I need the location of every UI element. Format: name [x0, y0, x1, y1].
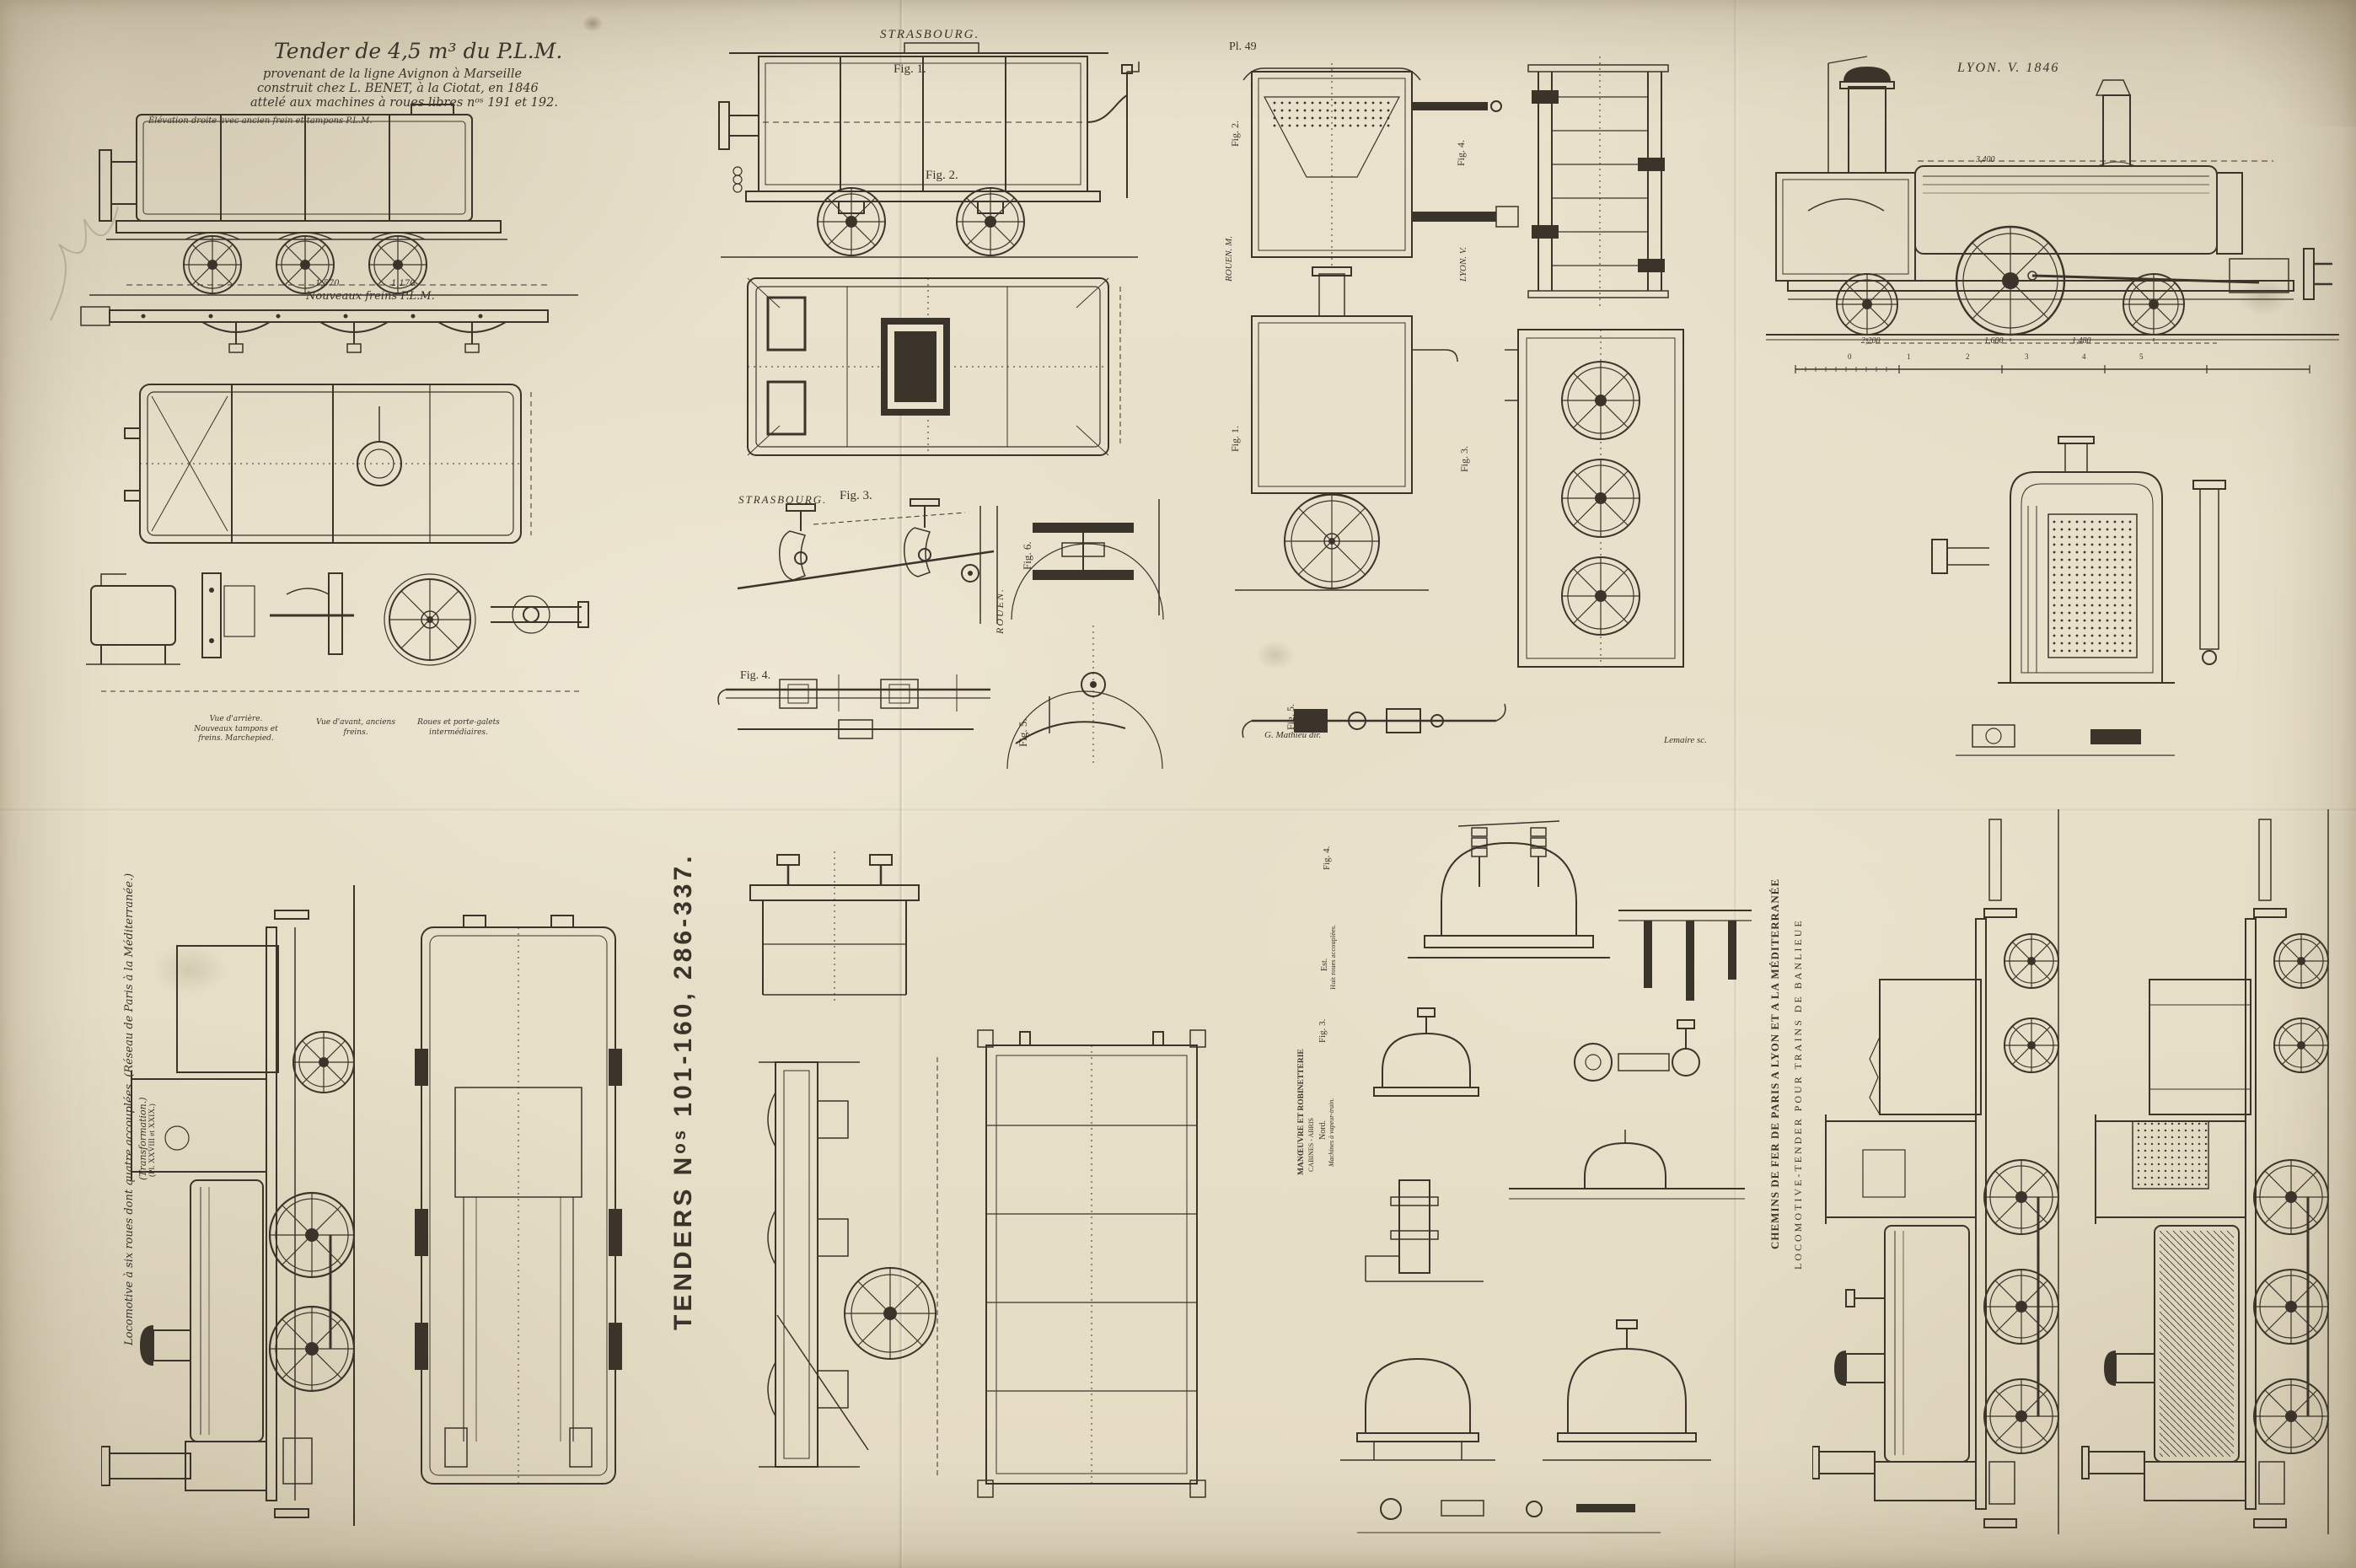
wheel	[2004, 934, 2058, 988]
banlieue-locomotive-subtitle: LOCOMOTIVE-TENDER POUR TRAINS DE BANLIEU…	[1792, 918, 1805, 1270]
driving-wheel	[270, 1307, 354, 1391]
driving-wheel	[1984, 1160, 2058, 1234]
strasbourg-fig3-label: Fig. 3.	[840, 489, 872, 503]
southeast-caption-plates: (Pl. XXVIII et XXIX.)	[148, 1104, 157, 1177]
axle-end-view-fig6	[1012, 499, 1163, 620]
scale-tick-4: 4	[2082, 352, 2086, 361]
wheel	[2123, 274, 2184, 335]
tenders-series-title: TENDERS Nᵒˢ 101-160, 286-337.	[669, 853, 698, 1330]
fittings-caption-main: MANŒUVRE ET ROBINETTERIE	[1297, 1049, 1306, 1175]
fittings-est-sub-label: Huit roues accouplées.	[1328, 925, 1337, 990]
strasbourg-fig2-label: Fig. 2.	[926, 169, 958, 183]
rouen-hopper-section	[1243, 63, 1518, 266]
paper-stain	[582, 15, 604, 32]
pl49-section-drawings	[1218, 46, 1724, 763]
banlieue-railway-title: CHEMINS DE FER DE PARIS A LYON ET A LA M…	[1768, 878, 1782, 1249]
wheel	[845, 1268, 936, 1359]
driving-wheel	[2254, 1379, 2328, 1453]
driving-wheel	[2254, 1270, 2328, 1344]
locomotive-elevation-rotated	[101, 885, 354, 1526]
lyon-dimension-2: 1,600	[1984, 336, 2004, 346]
fittings-fig3-label: Fig. 3.	[1318, 1019, 1328, 1043]
plm-title-line3: construit chez L. BENET, à la Ciotat, en…	[257, 82, 539, 95]
lyon-dimension-3: 1,480	[2072, 336, 2091, 346]
tender-plan-rotated	[978, 1030, 1205, 1497]
wheel	[1562, 557, 1640, 635]
fittings-nord-sub-label: Machines à vapeur-train.	[1328, 1098, 1335, 1167]
wheel	[1285, 494, 1379, 588]
plm-title-line2: provenant de la ligne Avignon à Marseill…	[263, 67, 522, 81]
strasbourg-fig5-label: Fig. 5.	[1017, 718, 1030, 747]
strasbourg-fig6-label: Fig. 6.	[1021, 541, 1034, 570]
strasbourg-title: STRASBOURG.	[880, 28, 979, 42]
tender-end-view	[750, 851, 919, 1003]
scale-tick-3: 3	[2025, 352, 2029, 361]
scale-tick-1: 1	[1907, 352, 1911, 361]
fittings-caption-sub: CABINES - ABRIS	[1307, 1118, 1315, 1172]
axle-assembly-fig4	[718, 674, 990, 738]
plm-caption-elevation: Élévation droite avec ancien frein et ta…	[148, 116, 373, 126]
locomotive-plan-rotated	[415, 916, 622, 1484]
wheel	[184, 236, 241, 293]
strasbourg-plan-view	[748, 278, 1120, 455]
boiler-top-dome	[1509, 1130, 1745, 1199]
tender-side-frame-rotated	[759, 1054, 937, 1475]
safety-valve-dome-large	[1408, 821, 1610, 958]
tender-frame-drawings	[725, 843, 1231, 1534]
strasbourg-tender-drawings	[712, 21, 1151, 468]
banlieue-locomotive-drawings	[1812, 792, 2352, 1551]
plate-number: Pl. 49	[1229, 40, 1257, 54]
driving-wheel	[1956, 227, 2064, 335]
plm-caption-wheels: Roues et porte-galets intermédiaires.	[416, 718, 501, 738]
pl49-fig3-label: Fig. 3.	[1458, 446, 1471, 472]
plm-dimension-a: 1,570	[315, 279, 340, 288]
small-valve-parts	[1357, 1499, 1661, 1533]
pl49-fig4-label: Fig. 4.	[1455, 140, 1468, 166]
boiler-fittings-drawings	[1290, 809, 1762, 1551]
valve-cluster	[1575, 1020, 1699, 1081]
fittings-nord-label: Nord.	[1318, 1120, 1328, 1140]
wheel	[2004, 1018, 2058, 1072]
rouen-m-label: ROUEN. M.	[1224, 236, 1234, 282]
scale-tick-5: 5	[2139, 352, 2144, 361]
lyon-frame-end-view	[1528, 56, 1668, 306]
plm-tender-drawings	[76, 101, 598, 767]
plm-title-line4: attelé aux machines à roues libres nᵒˢ 1…	[250, 96, 558, 110]
firebox-section	[1932, 437, 2225, 755]
wheel	[1562, 362, 1640, 439]
locomotive-elevation	[1766, 56, 2339, 373]
steam-pipe-run	[1618, 910, 1752, 1001]
dome-on-stand-left	[1340, 1359, 1495, 1460]
pl49-fig2-label: Fig. 2.	[1229, 121, 1242, 147]
strasbourg-fig4-label: Fig. 4.	[740, 669, 770, 683]
driving-wheel	[270, 1193, 354, 1277]
pl49-fig5-label: Fig. 5.	[1285, 704, 1297, 730]
plm-frame-view	[81, 307, 548, 352]
firebox-section-drawing	[1922, 405, 2326, 776]
feed-pump	[1366, 1180, 1484, 1281]
plm-title-line1: Tender de 4,5 m³ du P.L.M.	[274, 39, 562, 63]
rouen-label: ROUEN.	[994, 588, 1006, 634]
lyon-dimension-1: 2,200	[1861, 336, 1881, 346]
wheel	[293, 1032, 354, 1093]
dome-on-stand-right	[1543, 1320, 1711, 1460]
strasbourg-fig1-label: Fig. 1.	[894, 62, 926, 77]
credit-engraver: Lemaire sc.	[1664, 735, 1707, 745]
wheel-face-view	[384, 574, 475, 665]
scale-tick-0: 0	[1848, 352, 1852, 361]
fittings-fig4-label: Fig. 4.	[1322, 846, 1332, 870]
wheel	[2274, 1018, 2328, 1072]
brake-linkage-fig3	[738, 499, 997, 624]
southeast-locomotive-drawings	[101, 877, 641, 1534]
plm-dimension-b: 1,170	[391, 279, 416, 288]
pl49-fig1-label: Fig. 1.	[1229, 426, 1242, 452]
strasbourg-title-lower: STRASBOURG.	[738, 493, 827, 507]
wheel	[957, 188, 1024, 255]
lyon-dimension-top: 3,400	[1976, 155, 1995, 164]
driving-wheel	[1984, 1270, 2058, 1344]
regulator-dome	[1374, 1008, 1479, 1096]
southeast-caption-main: Locomotive à six roues dont quatre accou…	[123, 873, 136, 1345]
lyon-1846-title: LYON. V. 1846	[1957, 61, 2059, 76]
wheel	[2274, 934, 2328, 988]
lyon-1846-locomotive-drawing	[1758, 46, 2348, 400]
strasbourg-side-elevation	[719, 43, 1139, 257]
plm-detail-parts	[86, 573, 588, 691]
lyon-v-label: LYON. V.	[1458, 247, 1468, 282]
credit-director: G. Mathieu dir.	[1264, 730, 1321, 740]
wheel	[1837, 274, 1897, 335]
plm-plan-view	[125, 384, 531, 543]
wheel	[818, 188, 885, 255]
plm-caption-front-view: Vue d'avant, anciens freins.	[314, 718, 398, 738]
driving-wheel	[1984, 1379, 2058, 1453]
driving-wheel	[2254, 1160, 2328, 1234]
southeast-caption-transformation: (Transformation.)	[137, 1097, 148, 1180]
engraving-plate: Tender de 4,5 m³ du P.L.M. provenant de …	[0, 0, 2356, 1568]
wheel	[1562, 459, 1640, 537]
strasbourg-brake-drawings	[712, 489, 1184, 776]
plm-new-brakes-label: Nouveaux freins P.L.M.	[306, 290, 435, 303]
scale-tick-2: 2	[1966, 352, 1970, 361]
axle-end-view-fig5	[1007, 626, 1162, 769]
plm-caption-rear-view: Vue d'arrière. Nouveaux tampons et frein…	[194, 715, 278, 744]
